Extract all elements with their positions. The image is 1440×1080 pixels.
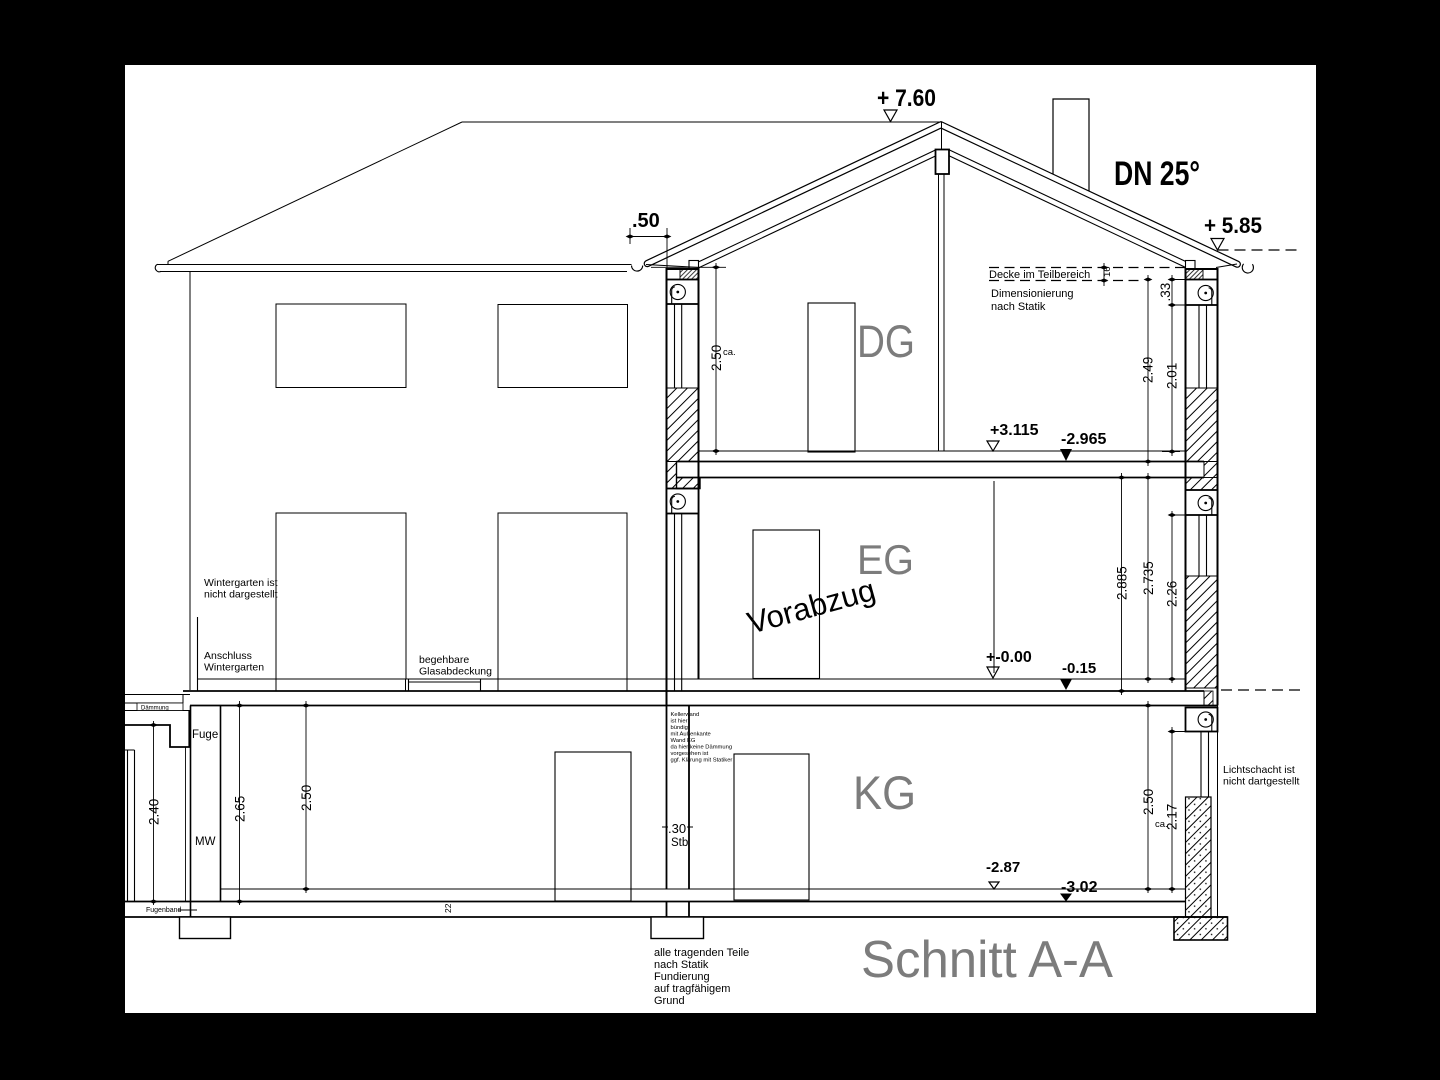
svg-text:+3.115: +3.115	[990, 422, 1039, 439]
svg-text:2.26: 2.26	[1165, 581, 1180, 607]
svg-text:-2.965: -2.965	[1061, 431, 1106, 448]
svg-text:16: 16	[1102, 266, 1113, 277]
svg-text:alle tragenden Teile: alle tragenden Teile	[654, 947, 749, 959]
svg-text:.50: .50	[632, 210, 660, 232]
svg-text:Dämmung: Dämmung	[141, 706, 169, 712]
svg-text:bündig: bündig	[671, 725, 688, 731]
svg-text:DN 25°: DN 25°	[1114, 155, 1200, 193]
svg-text:nach Statik: nach Statik	[991, 301, 1046, 313]
svg-text:Decke im Teilbereich: Decke im Teilbereich	[989, 269, 1090, 281]
svg-text:Schnitt A-A: Schnitt A-A	[861, 931, 1113, 989]
svg-text:Lichtschacht ist: Lichtschacht ist	[1223, 764, 1295, 776]
svg-text:Stb: Stb	[671, 837, 688, 849]
svg-text:Grund: Grund	[654, 995, 685, 1007]
svg-text:.30: .30	[668, 821, 686, 836]
svg-text:da hier keine Dämmung: da hier keine Dämmung	[671, 745, 733, 751]
svg-text:MW: MW	[195, 836, 216, 848]
svg-text:auf tragfähigem: auf tragfähigem	[654, 983, 730, 995]
svg-text:Fugenband: Fugenband	[146, 907, 182, 914]
svg-text:begehbare: begehbare	[419, 654, 469, 666]
svg-text:KG: KG	[853, 766, 916, 819]
svg-text:Wintergarten ist: Wintergarten ist	[204, 577, 278, 589]
svg-text:2.885: 2.885	[1115, 566, 1130, 600]
svg-text:nach Statik: nach Statik	[654, 959, 709, 971]
svg-text:Anschluss: Anschluss	[204, 650, 252, 662]
svg-text:ggf. Klärung mit Statiker: ggf. Klärung mit Statiker	[671, 758, 733, 764]
svg-text:Dimensionierung: Dimensionierung	[991, 288, 1074, 300]
svg-text:2.50: 2.50	[1141, 789, 1156, 815]
svg-text:nicht dartgestellt: nicht dartgestellt	[1223, 776, 1300, 788]
svg-text:Kellerwand: Kellerwand	[671, 712, 700, 718]
svg-text:vorgesehen ist: vorgesehen ist	[671, 751, 709, 757]
svg-text:DG: DG	[857, 316, 915, 367]
svg-text:Fuge: Fuge	[192, 729, 218, 741]
svg-text:2.17: 2.17	[1165, 804, 1180, 830]
svg-text:Glasabdeckung: Glasabdeckung	[419, 666, 492, 678]
svg-text:2.50: 2.50	[709, 345, 724, 371]
svg-text:+ 5.85: + 5.85	[1204, 213, 1262, 238]
svg-text:2.01: 2.01	[1165, 363, 1180, 389]
svg-text:ist hier: ist hier	[671, 719, 688, 725]
svg-text:2.49: 2.49	[1141, 357, 1156, 383]
svg-text:2.735: 2.735	[1141, 561, 1156, 595]
svg-text:nicht dargestellt: nicht dargestellt	[204, 589, 278, 601]
svg-text:2.40: 2.40	[147, 799, 162, 825]
svg-text:-0.15: -0.15	[1062, 660, 1096, 677]
svg-text:Wintergarten: Wintergarten	[204, 662, 264, 674]
svg-text:+-0.00: +-0.00	[986, 649, 1032, 666]
svg-text:.33: .33	[1158, 283, 1173, 302]
svg-text:2.50: 2.50	[299, 785, 314, 811]
svg-text:-3.02: -3.02	[1061, 879, 1098, 896]
svg-text:+ 7.60: + 7.60	[877, 85, 936, 112]
svg-text:Fundierung: Fundierung	[654, 971, 710, 983]
svg-text:ca.: ca.	[723, 347, 736, 358]
svg-text:-2.87: -2.87	[986, 859, 1020, 876]
svg-text:2.65: 2.65	[233, 796, 248, 822]
svg-text:22: 22	[443, 903, 453, 913]
svg-text:Wand EG: Wand EG	[671, 738, 696, 744]
svg-text:mit Außenkante: mit Außenkante	[671, 732, 711, 738]
